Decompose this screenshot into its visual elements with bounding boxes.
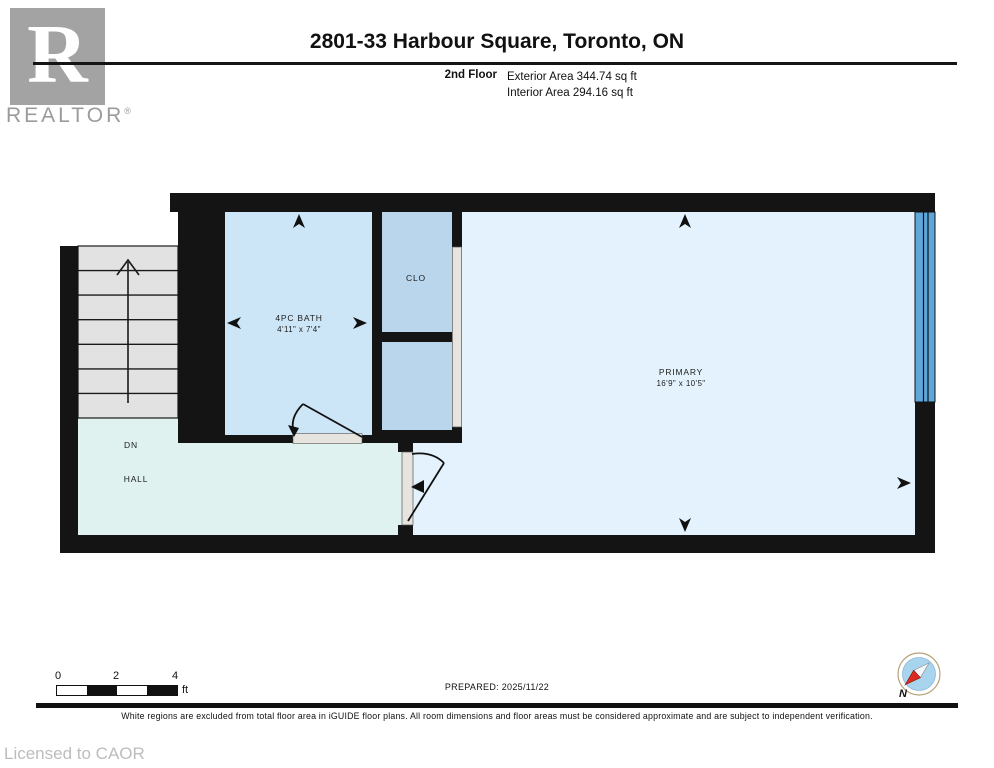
hall-label: HALL	[124, 474, 148, 484]
floor-plan: 4PC BATH 4'11" x 7'4" CLO PRIMARY 16'9" …	[0, 0, 994, 768]
window	[915, 212, 935, 402]
room-bath	[225, 212, 372, 435]
scale-tick-4: 4	[172, 670, 178, 682]
closet-label: CLO	[406, 273, 426, 283]
room-closet-lower	[382, 342, 452, 430]
page-title: 2801-33 Harbour Square, Toronto, ON	[0, 30, 994, 54]
header-divider-line	[33, 62, 957, 65]
footer-divider-bar	[36, 703, 958, 708]
stairs	[78, 246, 178, 418]
disclaimer-text: White regions are excluded from total fl…	[0, 711, 994, 721]
scale-tick-2: 2	[113, 670, 119, 682]
closet-pocket-door	[453, 247, 462, 427]
bath-label: 4PC BATH	[275, 313, 322, 323]
bath-dims: 4'11" x 7'4"	[277, 325, 321, 334]
room-closet-upper	[382, 212, 452, 332]
stairs-dn-label: DN	[124, 440, 138, 450]
licensed-to-label: Licensed to CAOR	[4, 744, 145, 764]
bath-door-opening	[293, 434, 362, 444]
realtor-logo-letter: R	[27, 13, 88, 97]
primary-dims: 16'9" x 10'5"	[656, 379, 705, 388]
registered-mark: ®	[124, 106, 131, 116]
realtor-wordmark: REALTOR®	[6, 104, 131, 128]
prepared-date: PREPARED: 2025/11/22	[0, 682, 994, 692]
compass-north-label: N	[899, 688, 907, 700]
primary-label: PRIMARY	[659, 367, 703, 377]
realtor-logo: R	[10, 8, 105, 105]
scale-tick-0: 0	[55, 670, 61, 682]
